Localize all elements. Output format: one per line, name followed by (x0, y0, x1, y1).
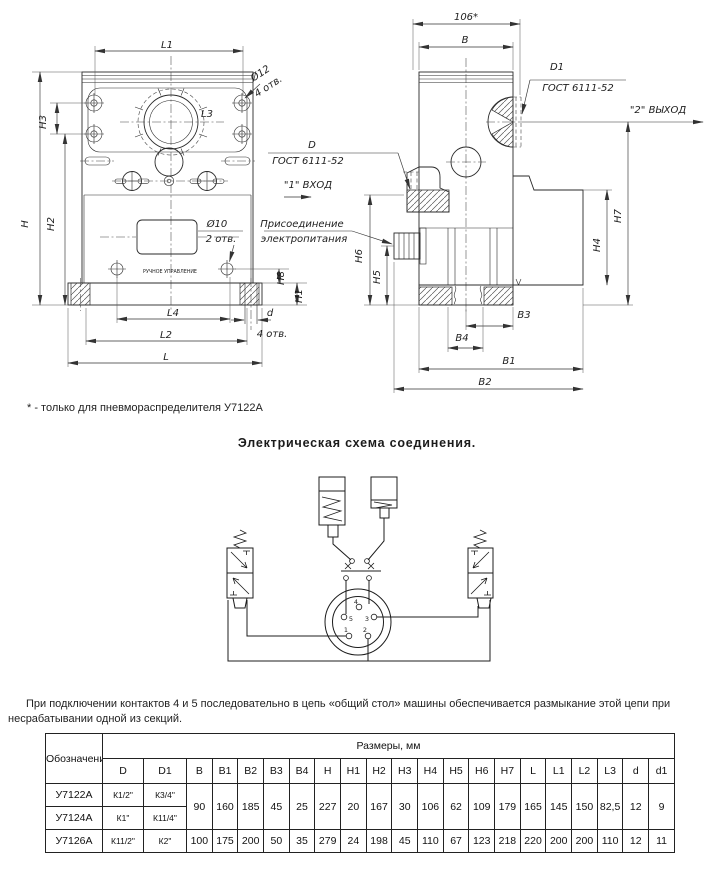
pin-label: 5 (349, 615, 353, 623)
cell-value: 110 (418, 830, 444, 853)
pin-label: 2 (363, 626, 367, 634)
side-base (419, 279, 521, 305)
dimension-label: D1 (550, 62, 564, 73)
cell-value: 24 (341, 830, 367, 853)
dimension-label: H8 (276, 271, 287, 285)
col-header-d1: d1 (649, 759, 675, 784)
cell-D1: К11/4" (144, 807, 187, 830)
col-header-H3: H3 (392, 759, 418, 784)
cell-value: 20 (341, 784, 367, 830)
dimension-label: "1" ВХОД (284, 180, 332, 191)
table-row-У7122А: У7122АК1/2"К3/4"901601854525227201673010… (46, 784, 675, 807)
dimensions-table-wrap: ОбозначениеРазмеры, ммDD1BB1B2B3B4HH1H2H… (45, 733, 675, 853)
dimension-label: ГОСТ 6111-52 (272, 156, 344, 167)
dimension-label: Ø10 (206, 218, 228, 230)
dimension-label: B1 (502, 356, 515, 367)
cell-value: 25 (289, 784, 315, 830)
dimension-label: РУЧНОЕ УПРАВЛЕНИЕ (143, 269, 197, 275)
col-header-H4: H4 (418, 759, 444, 784)
dimension-label: "2" ВЫХОД (630, 105, 687, 116)
cell-value: 110 (597, 830, 623, 853)
cell-value: 185 (238, 784, 264, 830)
schematic-title: Электрическая схема соединения. (0, 436, 714, 450)
override-holes (108, 260, 236, 278)
solenoid-coil-right (368, 477, 397, 560)
cell-value: 62 (443, 784, 469, 830)
switch-contacts (341, 559, 381, 614)
note-paragraph: При подключении контактов 4 и 5 последов… (8, 697, 708, 728)
dimension-label: H (20, 220, 31, 228)
dimension-label: B2 (478, 377, 491, 388)
pin-label: 1 (344, 626, 348, 634)
dimension-label: D (308, 140, 316, 151)
cell-value: 50 (264, 830, 290, 853)
cell-value: 150 (572, 784, 598, 830)
cell-value: 200 (546, 830, 572, 853)
col-header-H: H (315, 759, 341, 784)
col-header-H7: H7 (495, 759, 521, 784)
cell-value: 12 (623, 784, 649, 830)
cell-value: 179 (495, 784, 521, 830)
cell-value: 100 (187, 830, 213, 853)
cell-D1: К2" (144, 830, 187, 853)
cell-D: К1/2" (103, 784, 144, 807)
solenoid-coil-left (319, 477, 351, 560)
col-header-L3: L3 (597, 759, 623, 784)
dimension-label: H4 (592, 238, 603, 252)
cell-value: 35 (289, 830, 315, 853)
right-block (513, 176, 583, 285)
dimension-label: L4 (167, 308, 179, 319)
dimension-label: 106* (454, 12, 478, 23)
cell-value: 67 (443, 830, 469, 853)
dimensions-table: ОбозначениеРазмеры, ммDD1BB1B2B3B4HH1H2H… (45, 733, 675, 853)
wires (228, 600, 490, 661)
cell-value: 106 (418, 784, 444, 830)
cell-value: 30 (392, 784, 418, 830)
col-header-B: B (187, 759, 213, 784)
cell-D: К11/2" (103, 830, 144, 853)
col-header-d: d (623, 759, 649, 784)
pin-label: 3 (365, 615, 369, 623)
footnote: * - только для пневмораспределителя У712… (27, 402, 263, 414)
datasheet-page: L1Ø124 отв.L3H3HH2Ø102 отв.РУЧНОЕ УПРАВЛ… (0, 0, 714, 878)
cell-value: 200 (238, 830, 264, 853)
cell-value: 45 (264, 784, 290, 830)
dimension-label: Присоединение (260, 219, 343, 230)
col-header-D: D (103, 759, 144, 784)
cell-value: 220 (520, 830, 546, 853)
cell-value: 198 (366, 830, 392, 853)
dimension-label: электропитания (261, 234, 347, 245)
dimension-label: L3 (201, 109, 213, 120)
col-header-H2: H2 (366, 759, 392, 784)
power-connector (394, 228, 426, 264)
cell-value: 9 (649, 784, 675, 830)
cell-value: 82,5 (597, 784, 623, 830)
cell-designation: У7124А (46, 807, 103, 830)
dimension-label: H1 (294, 289, 305, 303)
dimension-label: d (267, 308, 274, 319)
technical-drawing: L1Ø124 отв.L3H3HH2Ø102 отв.РУЧНОЕ УПРАВЛ… (0, 0, 714, 400)
dimension-label: L1 (161, 40, 173, 51)
cell-value: 227 (315, 784, 341, 830)
cell-value: 200 (572, 830, 598, 853)
dimension-label: H7 (613, 208, 624, 223)
col-header-designation: Обозначение (46, 734, 103, 784)
dimension-label: B (462, 35, 469, 46)
cell-value: 109 (469, 784, 495, 830)
cell-value: 175 (212, 830, 238, 853)
inlet-flange (403, 167, 449, 212)
base (68, 278, 262, 330)
col-header-L: L (520, 759, 546, 784)
dimension-label: ГОСТ 6111-52 (542, 83, 614, 94)
side-dimensions (364, 19, 633, 393)
cell-value: 160 (212, 784, 238, 830)
cell-designation: У7122А (46, 784, 103, 807)
cell-value: 123 (469, 830, 495, 853)
nameplate (137, 220, 197, 254)
electrical-schematic: 54312 (0, 455, 714, 695)
cell-value: 165 (520, 784, 546, 830)
dimension-label: H2 (46, 217, 57, 231)
col-header-B3: B3 (264, 759, 290, 784)
dimension-label: H3 (38, 115, 49, 129)
pin-label: 4 (354, 598, 358, 606)
slotted-screws (112, 172, 228, 191)
valve-left (227, 530, 253, 608)
col-header-L2: L2 (572, 759, 598, 784)
dimension-label: 2 отв. (206, 234, 237, 245)
valve-right (468, 530, 493, 608)
cell-value: 12 (623, 830, 649, 853)
cell-value: 145 (546, 784, 572, 830)
col-header-L1: L1 (546, 759, 572, 784)
cell-value: 167 (366, 784, 392, 830)
table-row-У7126А: У7126АК11/2"К2"1001752005035279241984511… (46, 830, 675, 853)
col-header-H1: H1 (341, 759, 367, 784)
col-header-B1: B1 (212, 759, 238, 784)
dimension-label: 4 отв. (257, 329, 288, 340)
col-header-B2: B2 (238, 759, 264, 784)
col-header-sizes: Размеры, мм (103, 734, 675, 759)
cell-value: 11 (649, 830, 675, 853)
side-view (264, 19, 703, 393)
dimension-label: L2 (160, 330, 172, 341)
col-header-H5: H5 (443, 759, 469, 784)
dimension-label: L (163, 352, 169, 363)
cell-designation: У7126А (46, 830, 103, 853)
dimension-label: H5 (372, 270, 383, 284)
cell-value: 218 (495, 830, 521, 853)
col-header-B4: B4 (289, 759, 315, 784)
dimension-label: H6 (354, 249, 365, 263)
dimension-label: B4 (455, 333, 468, 344)
cell-value: 45 (392, 830, 418, 853)
cell-value: 279 (315, 830, 341, 853)
dimension-label: B3 (517, 310, 530, 321)
col-header-H6: H6 (469, 759, 495, 784)
cell-D1: К3/4" (144, 784, 187, 807)
col-header-D1: D1 (144, 759, 187, 784)
cell-D: К1" (103, 807, 144, 830)
cell-value: 90 (187, 784, 213, 830)
